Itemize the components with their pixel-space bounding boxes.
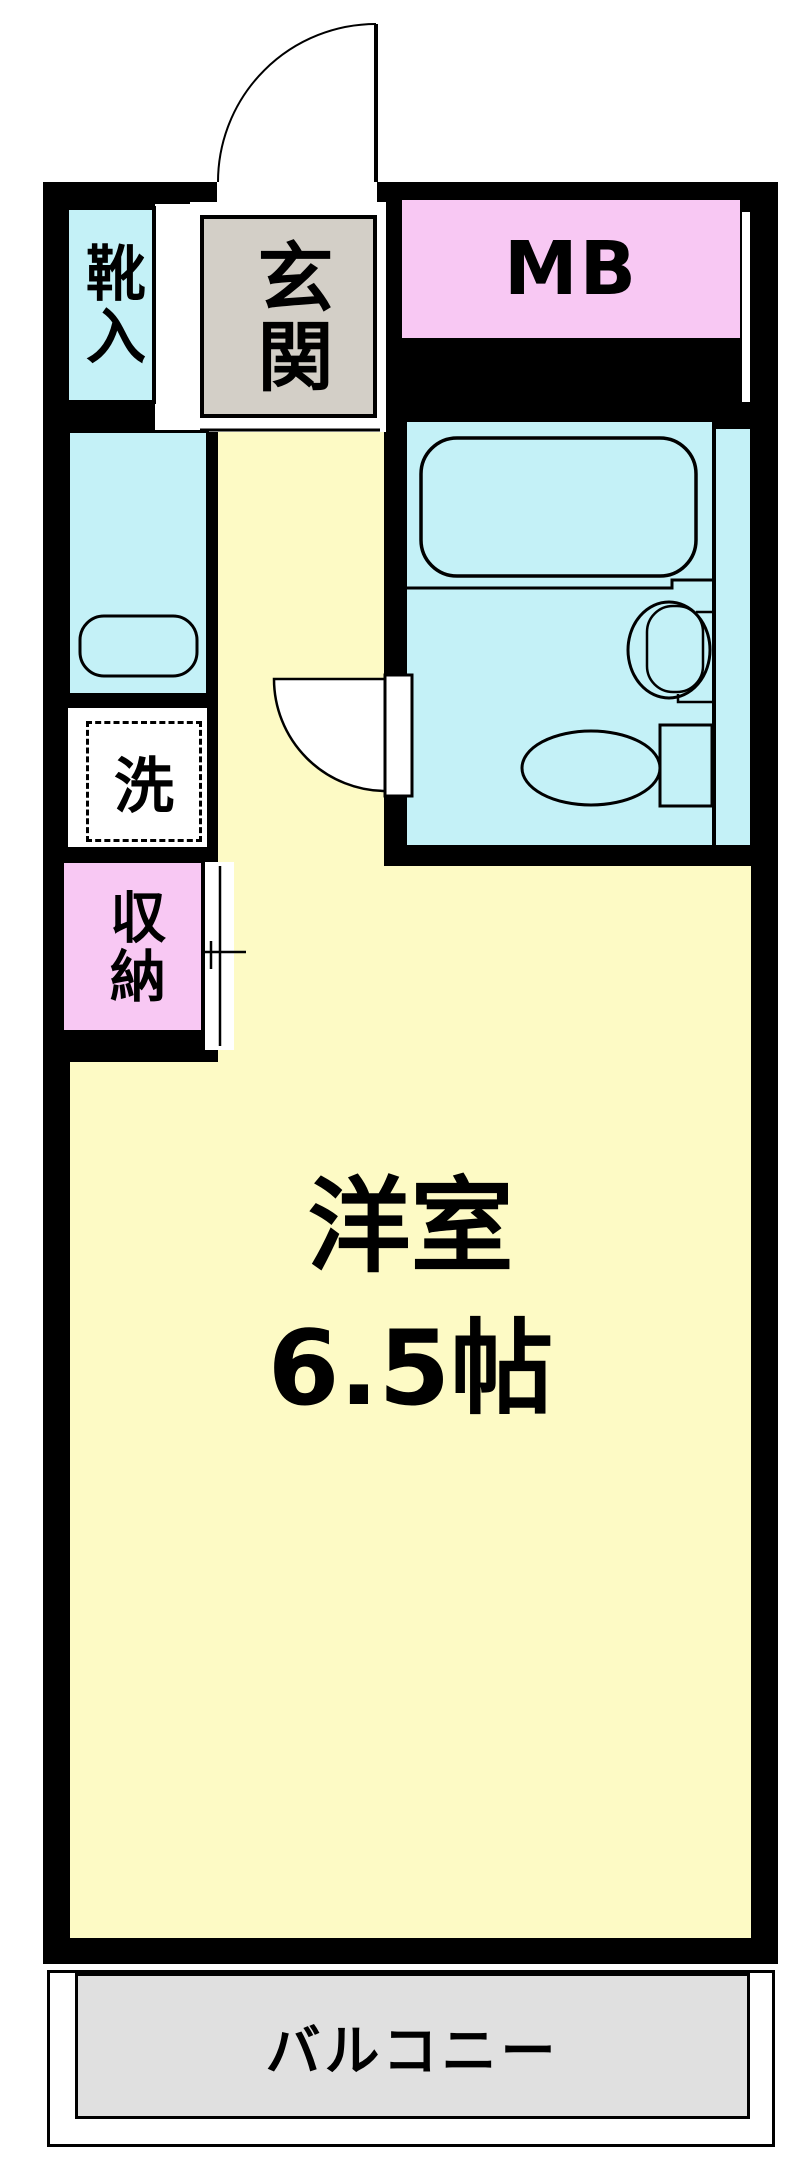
entrance-door-swing-arc: [218, 24, 376, 182]
main-room-size: 6.5帖: [70, 1298, 751, 1440]
meter-box: MB: [398, 196, 744, 342]
entrance-room: 玄関: [200, 215, 377, 418]
storage-closet: 収納: [60, 859, 205, 1034]
main-room-label: 洋室 6.5帖: [70, 1156, 751, 1440]
kitchen-counter: [67, 430, 209, 696]
floor-plan: 玄関 靴入 MB 洗 収納 洋室 6.5帖 バルコニー: [0, 0, 800, 2184]
laundry-machine-box: 洗: [86, 721, 202, 842]
shoe-cabinet: 靴入: [65, 206, 156, 404]
laundry-label: 洗: [114, 738, 174, 825]
bathroom-side-strip: [712, 429, 750, 845]
meter-box-label: MB: [504, 226, 638, 312]
balcony-label: バルコニー: [266, 2006, 560, 2086]
main-room-name: 洋室: [70, 1156, 751, 1298]
meter-box-door-mark: [742, 212, 750, 402]
entrance-label: 玄関: [251, 238, 327, 396]
storage-label: 収納: [105, 888, 161, 1006]
closet-door-strip: [205, 862, 234, 1050]
bathroom-floor: [407, 422, 712, 845]
shoe-cabinet-label: 靴入: [81, 242, 141, 368]
balcony-floor: バルコニー: [75, 1973, 750, 2119]
